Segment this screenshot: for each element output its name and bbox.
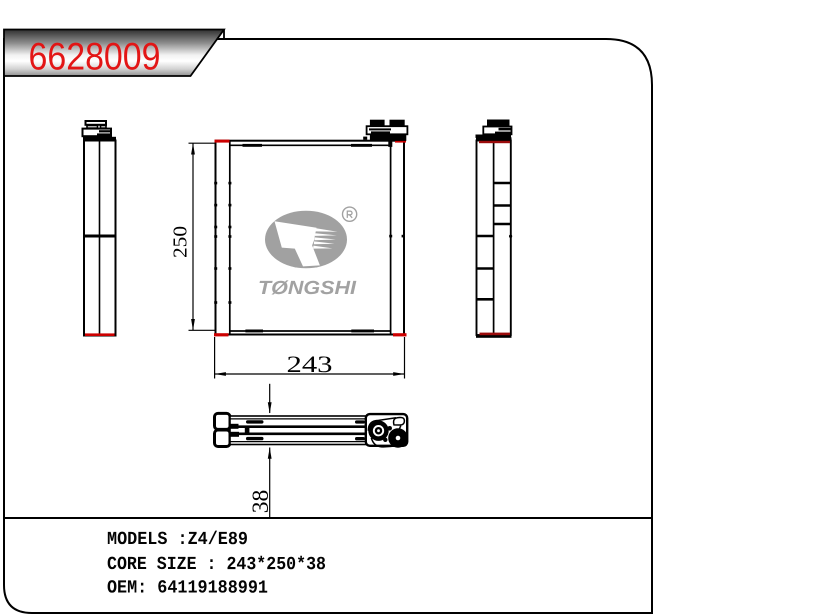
svg-text:OEM: 64119188991: OEM: 64119188991	[107, 578, 268, 599]
svg-text:250: 250	[171, 226, 192, 258]
svg-text:CORE SIZE : 243*250*38: CORE SIZE : 243*250*38	[107, 554, 326, 575]
svg-text:243: 243	[286, 352, 332, 378]
svg-text:6628009: 6628009	[28, 35, 160, 78]
svg-text:38: 38	[248, 490, 274, 514]
svg-text:MODELS :Z4/E89: MODELS :Z4/E89	[107, 529, 248, 550]
svg-text:TØNGSHI: TØNGSHI	[258, 278, 357, 299]
